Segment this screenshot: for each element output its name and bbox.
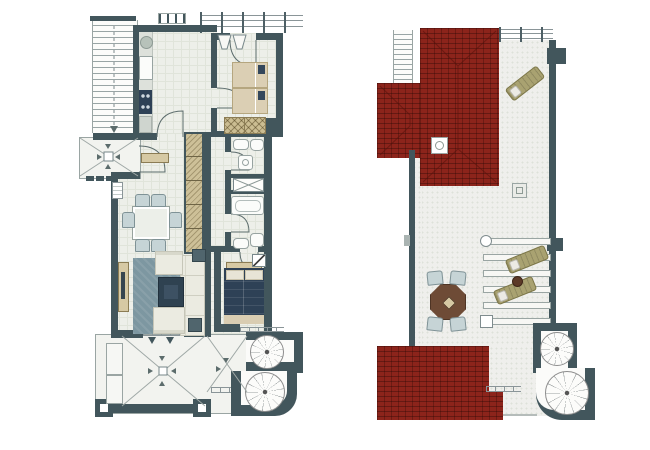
shelf-ticks — [157, 27, 185, 32]
tub-basin — [235, 200, 261, 212]
single-bed — [232, 88, 268, 114]
single-bed — [232, 62, 268, 88]
fireplace-symbol — [252, 254, 266, 267]
washbasin — [233, 139, 249, 150]
floorplan-canvas — [0, 0, 650, 450]
duvet — [224, 280, 264, 314]
wardrobe — [224, 117, 266, 134]
pillow — [258, 65, 265, 74]
bathtub — [231, 196, 264, 215]
sideboard — [118, 262, 129, 312]
tv-icon — [121, 272, 125, 299]
shower-drain-icon — [242, 159, 249, 166]
coffee-table — [158, 277, 184, 307]
dining-chair — [135, 239, 150, 252]
dining-chair — [151, 194, 166, 207]
dining-chair — [122, 212, 135, 228]
armchair — [153, 307, 185, 334]
stove — [139, 90, 152, 114]
washbasin — [233, 238, 249, 249]
dining-table — [132, 206, 170, 240]
side-table — [188, 318, 202, 332]
fridge — [139, 116, 152, 133]
foot-blanket — [224, 315, 264, 324]
console-shelf — [141, 153, 169, 163]
dining-chair — [135, 194, 150, 207]
kitchen-basket — [140, 36, 153, 49]
closet — [233, 178, 264, 192]
pillow — [245, 270, 263, 280]
toilet — [250, 139, 264, 151]
table-inlay — [164, 285, 178, 299]
dining-chair — [169, 212, 182, 228]
shower-tray — [238, 155, 253, 170]
main-floor-furniture — [0, 0, 650, 450]
wardrobe-divider — [244, 118, 245, 133]
double-bed — [224, 268, 264, 324]
kitchen-sink — [139, 56, 153, 80]
closet-cross-icon — [234, 179, 263, 191]
toilet — [250, 233, 264, 247]
pillow — [258, 91, 265, 100]
armchair — [155, 251, 183, 275]
side-table — [192, 249, 206, 262]
radiator — [112, 182, 123, 199]
pillow — [226, 270, 244, 280]
tall-wardrobe — [184, 132, 204, 254]
